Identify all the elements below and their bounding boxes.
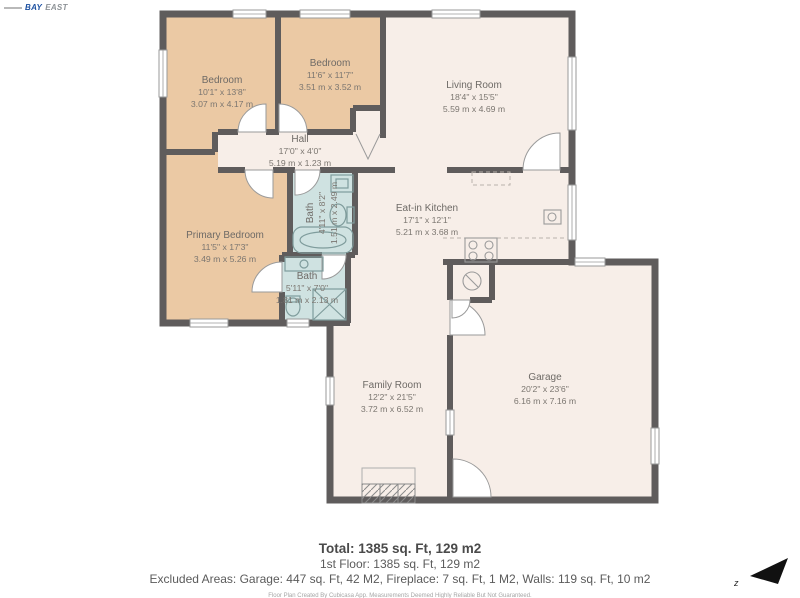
window — [159, 50, 167, 97]
room-floors — [163, 14, 655, 500]
hall-floor — [218, 132, 395, 172]
total-area-text: Total: 1385 sq. Ft, 129 m2 — [0, 540, 800, 557]
fireplace-hearth — [362, 468, 415, 484]
window — [568, 185, 576, 240]
first-floor-area-text: 1st Floor: 1385 sq. Ft, 129 m2 — [0, 557, 800, 572]
excluded-areas-text: Excluded Areas: Garage: 447 sq. Ft, 42 M… — [0, 572, 800, 587]
floor-plan-page: BAYEAST — [0, 0, 800, 598]
window — [300, 10, 350, 18]
window — [287, 319, 309, 327]
window — [326, 377, 334, 405]
window — [575, 258, 605, 266]
area-summary: Total: 1385 sq. Ft, 129 m2 1st Floor: 13… — [0, 540, 800, 598]
floor-plan-drawing — [0, 0, 800, 598]
north-arrow-icon — [732, 554, 792, 590]
fireplace-chimney — [362, 484, 415, 503]
window — [233, 10, 266, 18]
compass: z — [732, 554, 792, 590]
window — [432, 10, 480, 18]
corridor-floor — [348, 255, 455, 325]
window — [446, 410, 454, 435]
closet-floor — [353, 108, 383, 134]
north-arrow-shape — [750, 558, 788, 584]
window — [651, 428, 659, 464]
compass-label: z — [734, 578, 739, 588]
window — [568, 57, 576, 130]
kitchen-floor — [355, 168, 572, 264]
disclaimer-text: Floor Plan Created By Cubicasa App. Meas… — [0, 593, 800, 598]
window — [190, 319, 228, 327]
